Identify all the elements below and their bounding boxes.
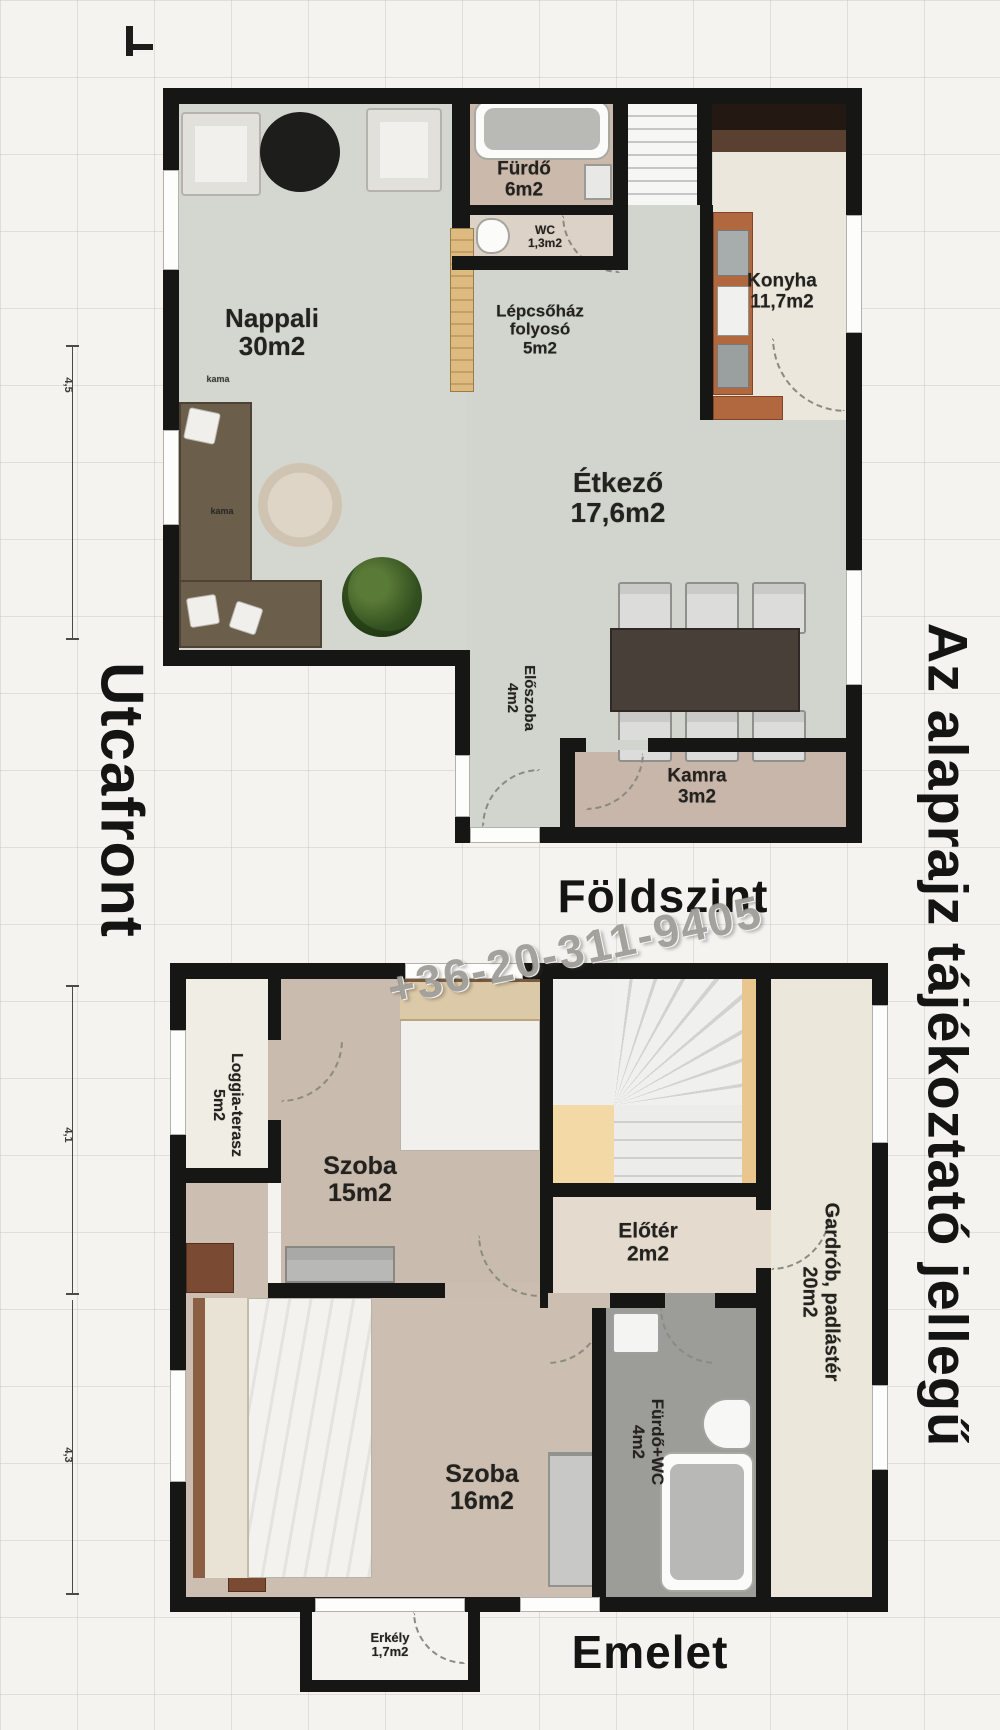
wall xyxy=(540,979,553,1298)
dining-chair xyxy=(752,710,806,762)
wall xyxy=(756,979,771,1210)
room-label-lepcsohaz: Lépcsőházfolyosó5m2 xyxy=(496,302,584,357)
kitchen-appliance xyxy=(717,230,749,276)
wall xyxy=(452,256,628,270)
bathtub-basin xyxy=(670,1464,744,1580)
dimension-label: 4,5 xyxy=(62,377,74,392)
room-label-loggia: Loggia-terasz5m2 xyxy=(209,1053,245,1157)
room-label-szoba16: Szoba16m2 xyxy=(445,1461,519,1515)
window xyxy=(846,570,862,685)
balcony-door xyxy=(315,1598,465,1612)
wall xyxy=(575,738,586,752)
wall xyxy=(553,1183,756,1197)
dimension-tick xyxy=(66,345,79,347)
potted-plant xyxy=(342,557,422,637)
wall xyxy=(268,1283,445,1298)
room-label-nappali: Nappali30m2 xyxy=(225,304,319,360)
entrance-door xyxy=(470,827,540,843)
window xyxy=(170,1030,186,1135)
wall xyxy=(163,650,470,666)
toilet xyxy=(702,1398,752,1450)
door-opening xyxy=(665,1293,715,1308)
wall xyxy=(648,738,846,752)
corner-mark xyxy=(133,44,153,50)
room-label-konyha: Konyha11,7m2 xyxy=(747,271,817,312)
kitchen-sink xyxy=(717,286,749,336)
dining-chair xyxy=(618,582,672,634)
wall xyxy=(756,1268,771,1597)
wall xyxy=(700,205,713,420)
window xyxy=(520,1597,600,1612)
room-label-wc: WC1,3m2 xyxy=(528,224,562,250)
wall xyxy=(186,1168,268,1183)
upper-floor-title: Emelet xyxy=(572,1625,729,1679)
armchair xyxy=(181,112,261,196)
kitchen-appliance xyxy=(717,344,749,388)
dimension-label: 4,3 xyxy=(62,1447,74,1462)
dining-chair xyxy=(752,582,806,634)
window xyxy=(846,215,862,333)
sofa-pillow xyxy=(186,594,220,628)
wall xyxy=(613,88,628,270)
window xyxy=(163,430,179,525)
wall xyxy=(470,205,613,215)
armchair xyxy=(366,108,442,192)
kitchen-cabinet xyxy=(713,396,783,420)
stair-fan xyxy=(614,979,756,1105)
room-label-eloszoba: Előszoba4m2 xyxy=(503,665,537,731)
wall xyxy=(592,1308,606,1597)
wall xyxy=(452,88,470,228)
floorplan-canvas: 4,5 4,1 4,3 xyxy=(0,0,1000,1730)
bathtub-basin xyxy=(484,108,600,150)
bathroom-sink xyxy=(612,1312,660,1354)
sofa-tag: kama xyxy=(210,507,233,517)
door-opening xyxy=(268,1040,281,1120)
room-label-gardrob: Gardrób, padlástér20m2 xyxy=(798,1203,843,1382)
wall xyxy=(846,88,862,843)
sofa-tag: kama xyxy=(206,375,229,385)
dresser xyxy=(285,1246,395,1283)
room-label-etkezo: Étkező17,6m2 xyxy=(571,468,666,528)
dining-table xyxy=(610,628,800,712)
room-label-eloter: Előtér2m2 xyxy=(618,1220,678,1265)
bathroom-sink xyxy=(584,164,612,200)
terrace-door xyxy=(455,755,470,817)
dining-chair xyxy=(685,710,739,762)
toilet xyxy=(476,218,510,254)
window xyxy=(170,1370,186,1482)
bench xyxy=(548,1452,596,1587)
dining-chair xyxy=(685,582,739,634)
round-coffee-table xyxy=(260,112,340,192)
wall xyxy=(697,88,712,205)
wall xyxy=(540,1293,548,1308)
corner-mark xyxy=(126,26,133,56)
dimension-tick xyxy=(66,638,79,640)
street-front-label: Utcafront xyxy=(88,662,157,938)
room-label-furdo-wc: Fürdő+WC4m2 xyxy=(629,1399,667,1485)
wall xyxy=(560,738,575,843)
hall-cabinet xyxy=(450,228,474,392)
wall xyxy=(610,1293,665,1308)
window xyxy=(872,1385,888,1470)
nightstand xyxy=(186,1243,234,1293)
round-rug xyxy=(258,463,342,547)
kitchen-counter-brown xyxy=(700,130,846,152)
bed-pillow-band xyxy=(205,1298,249,1578)
dimension-label: 4,1 xyxy=(62,1127,74,1142)
disclaimer-label: Az alaprajz tájékoztató jellegű xyxy=(916,623,981,1448)
wall xyxy=(268,1120,281,1183)
kitchen-counter-dark xyxy=(700,104,846,130)
balcony-wall xyxy=(300,1680,480,1692)
room-label-erkely: Erkély1,7m2 xyxy=(370,1631,409,1659)
bed-headboard xyxy=(193,1298,205,1578)
dimension-tick xyxy=(66,985,79,987)
wall xyxy=(268,979,281,1040)
room-label-szoba15: Szoba15m2 xyxy=(323,1153,397,1207)
staircase-treads xyxy=(625,104,700,205)
room-label-kamra: Kamra3m2 xyxy=(667,766,726,807)
wall xyxy=(163,88,862,104)
room-label-furdo: Fürdő6m2 xyxy=(497,159,551,200)
dimension-tick xyxy=(66,1593,79,1595)
door-opening xyxy=(586,740,648,750)
sofa-pillow xyxy=(183,407,221,445)
stair-wood-strip xyxy=(742,979,756,1183)
window xyxy=(163,170,179,270)
stair-straight-treads xyxy=(614,1105,756,1183)
window xyxy=(872,1005,888,1143)
dimension-tick xyxy=(66,1293,79,1295)
stair-landing xyxy=(553,1105,614,1183)
door-opening xyxy=(756,1210,771,1268)
door-opening xyxy=(548,1293,610,1308)
